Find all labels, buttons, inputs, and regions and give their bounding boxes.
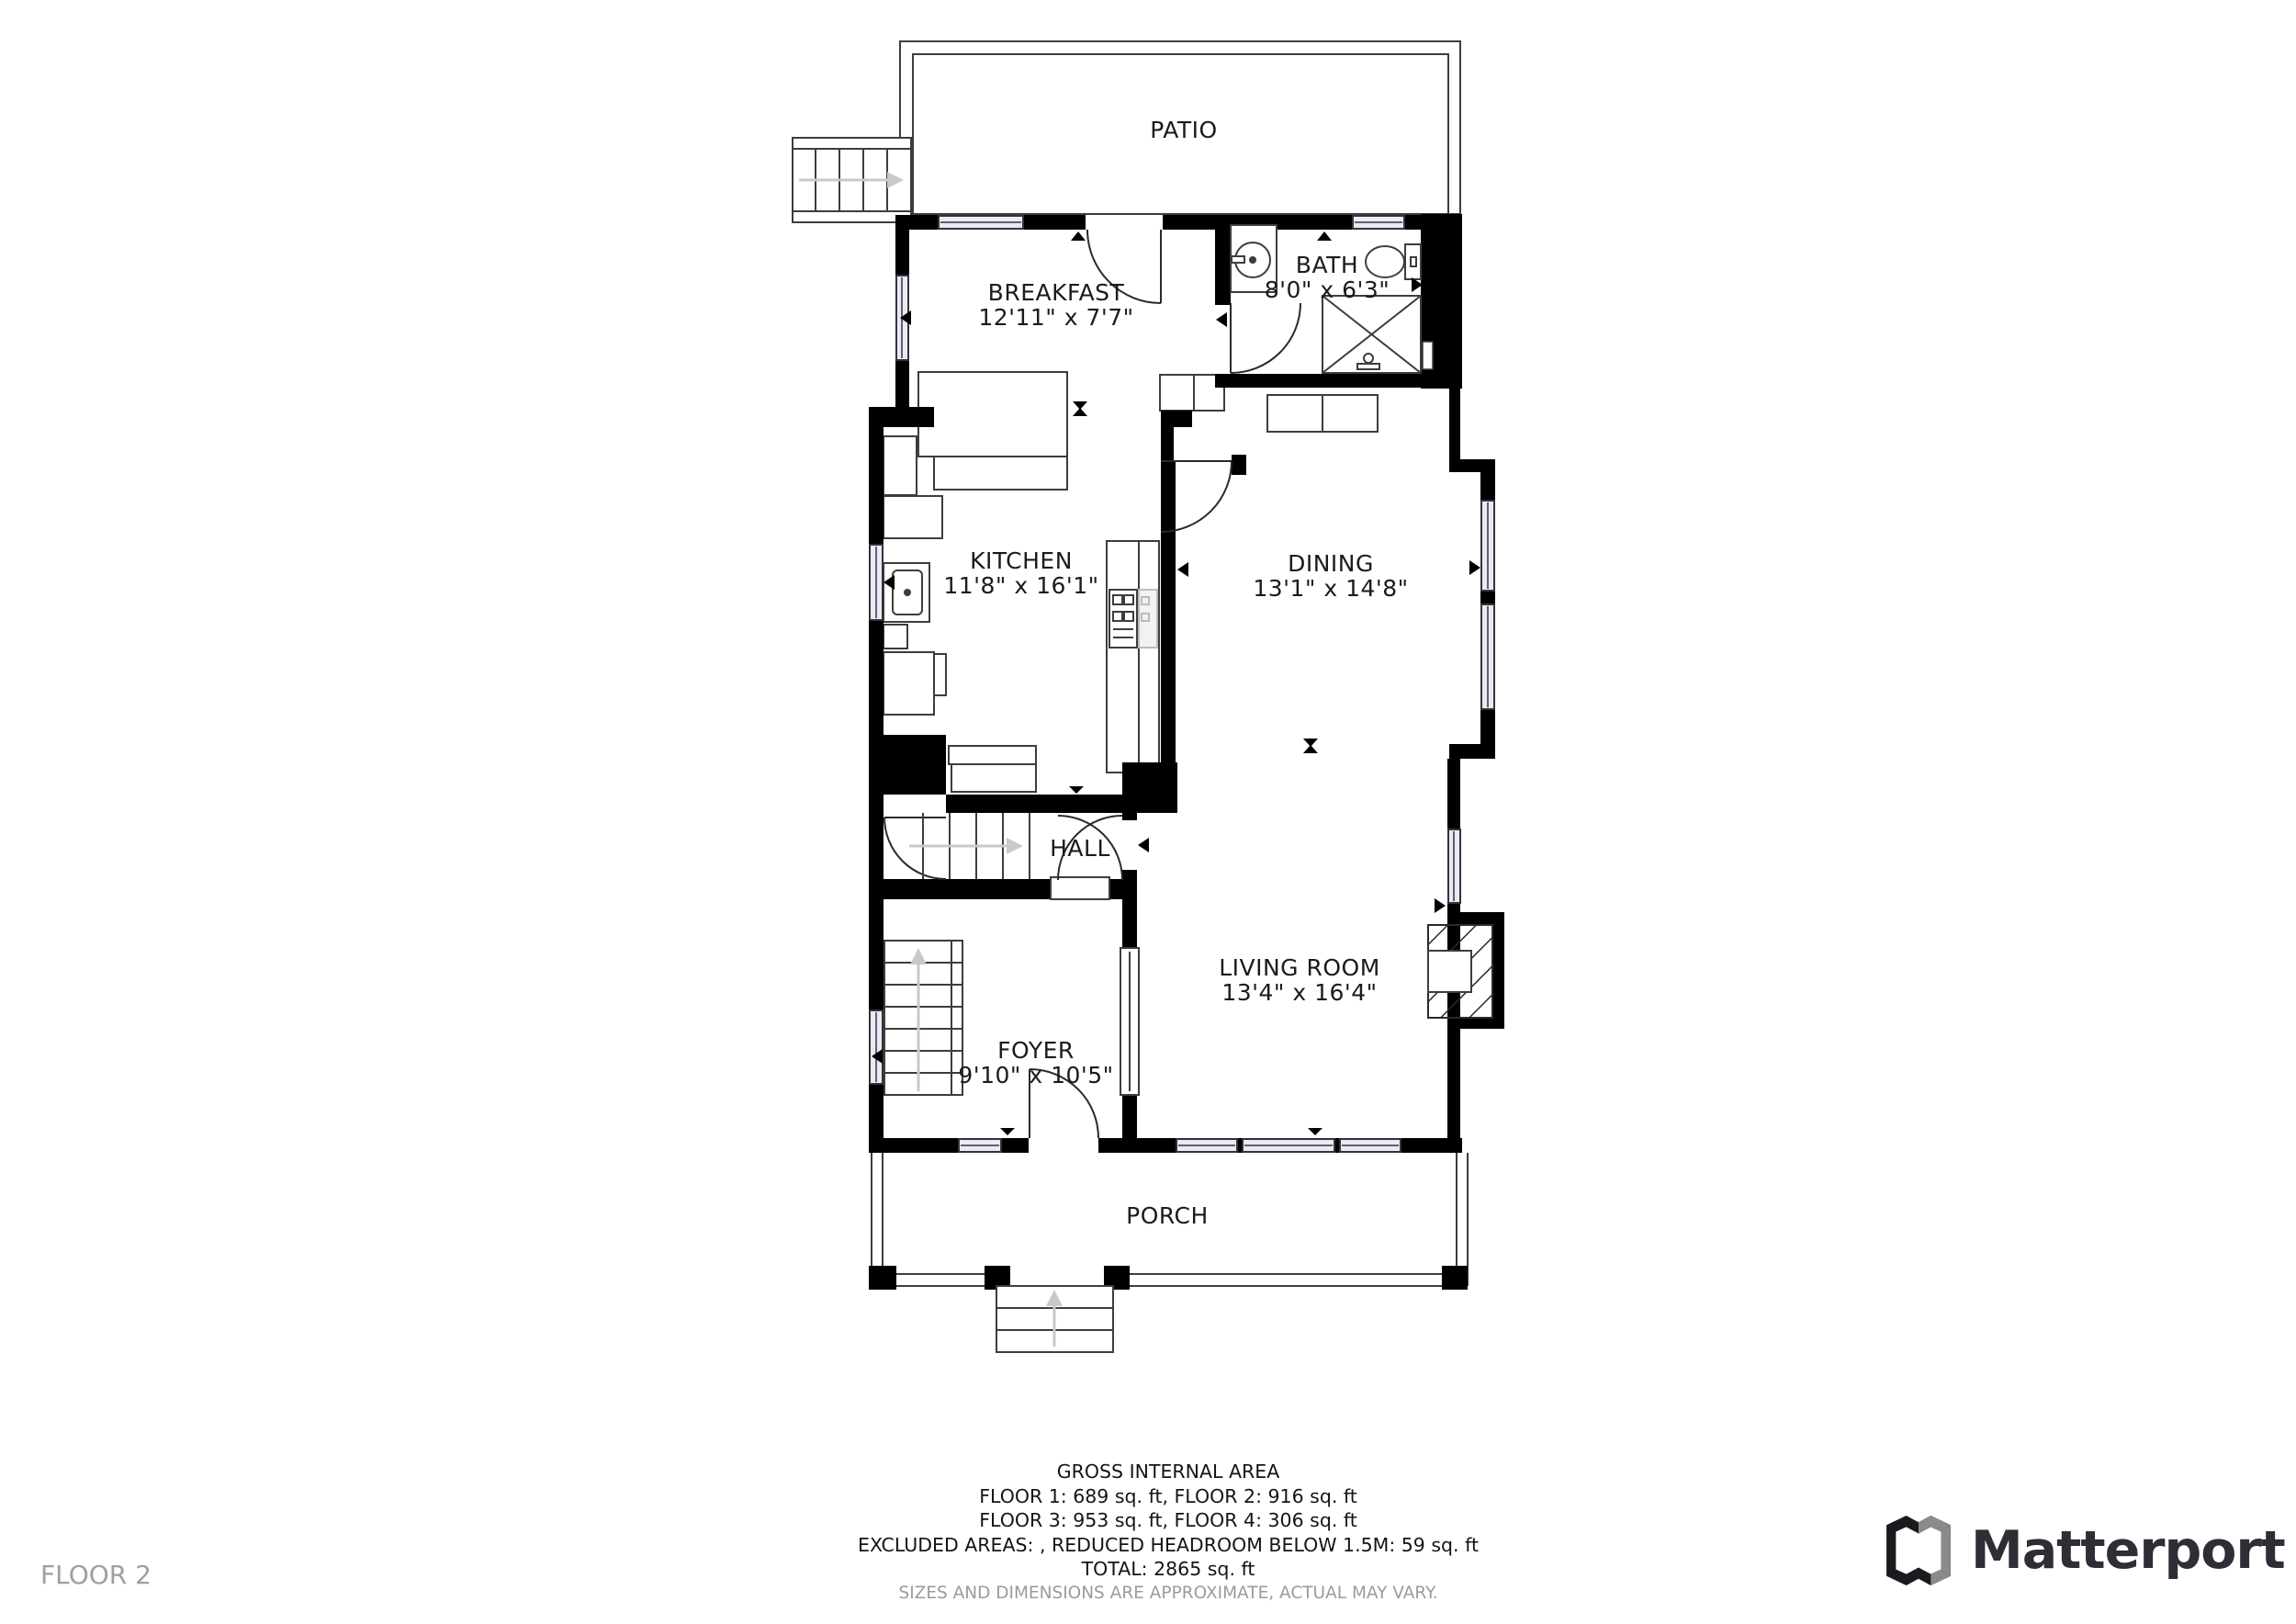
window-bath-top bbox=[1353, 216, 1404, 229]
window-foyer-front bbox=[959, 1139, 1001, 1152]
room-label-bath: BATH bbox=[1296, 252, 1358, 278]
room-label-breakfast: BREAKFAST bbox=[988, 279, 1125, 306]
window-kitchen-left bbox=[870, 545, 883, 620]
marker-right-icon bbox=[1469, 560, 1480, 575]
room-dims-breakfast: 12'11" x 7'7" bbox=[978, 304, 1133, 331]
room-dims-living-room: 13'4" x 16'4" bbox=[1221, 979, 1377, 1006]
marker-up-icon bbox=[1317, 231, 1332, 241]
stove bbox=[1109, 590, 1137, 648]
window-living-front-2 bbox=[1243, 1139, 1334, 1152]
porch bbox=[869, 1153, 1468, 1352]
window-dining-bay-upper bbox=[1481, 501, 1494, 591]
window-living-right bbox=[1448, 829, 1460, 903]
room-label-dining: DINING bbox=[1288, 550, 1374, 577]
foyer-stairs bbox=[884, 941, 962, 1095]
cased-opening bbox=[1120, 948, 1139, 1095]
room-label-foyer: FOYER bbox=[997, 1037, 1075, 1064]
door-bath bbox=[1231, 303, 1300, 373]
area-excluded: EXCLUDED AREAS: , REDUCED HEADROOM BELOW… bbox=[801, 1533, 1536, 1558]
window-living-front-1 bbox=[1176, 1139, 1237, 1152]
hall-threshold bbox=[1051, 877, 1109, 899]
room-dims-kitchen: 11'8" x 16'1" bbox=[943, 572, 1098, 599]
floor-plan-svg: PATIO BREAKFAST 12'11" x 7'7" BATH 8'0" … bbox=[0, 0, 2296, 1624]
marker-down-icon bbox=[1069, 786, 1084, 794]
floor-selector-label: FLOOR 2 bbox=[40, 1560, 152, 1590]
room-label-patio: PATIO bbox=[1150, 117, 1217, 143]
hall-stairs bbox=[909, 813, 1030, 879]
stove-ghost bbox=[1139, 590, 1157, 648]
shower bbox=[1322, 296, 1421, 373]
front-steps bbox=[996, 1286, 1113, 1352]
firebox bbox=[1428, 951, 1471, 992]
toilet-icon bbox=[1366, 246, 1404, 277]
window-dining-bay-lower bbox=[1481, 604, 1494, 709]
room-dims-foyer: 9'10" x 10'5" bbox=[958, 1062, 1113, 1088]
marker-left-icon bbox=[1216, 312, 1227, 327]
window-living-front-3 bbox=[1340, 1139, 1401, 1152]
room-labels: PATIO BREAKFAST 12'11" x 7'7" BATH 8'0" … bbox=[943, 117, 1408, 1229]
porch-column bbox=[869, 1266, 896, 1290]
room-label-hall: HALL bbox=[1050, 835, 1110, 862]
area-floors-1-2: FLOOR 1: 689 sq. ft, FLOOR 2: 916 sq. ft bbox=[801, 1484, 1536, 1509]
marker-left-icon bbox=[1177, 562, 1188, 577]
area-summary: GROSS INTERNAL AREA FLOOR 1: 689 sq. ft,… bbox=[801, 1460, 1536, 1607]
area-summary-title: GROSS INTERNAL AREA bbox=[801, 1460, 1536, 1484]
marker-up-icon bbox=[1071, 231, 1086, 241]
room-label-living-room: LIVING ROOM bbox=[1219, 954, 1380, 981]
stair-direction-arrow-icon bbox=[1007, 838, 1023, 854]
patio-stairs bbox=[793, 138, 911, 222]
marker-down-icon bbox=[1000, 1128, 1015, 1135]
marker-down-icon bbox=[1308, 1128, 1322, 1135]
marker-left-icon bbox=[1138, 838, 1149, 852]
room-label-porch: PORCH bbox=[1126, 1202, 1209, 1229]
disclaimer-text: SIZES AND DIMENSIONS ARE APPROXIMATE, AC… bbox=[801, 1582, 1536, 1607]
area-floors-3-4: FLOOR 3: 953 sq. ft, FLOOR 4: 306 sq. ft bbox=[801, 1508, 1536, 1533]
breakfast-counter bbox=[918, 372, 1067, 490]
room-dims-bath: 8'0" x 6'3" bbox=[1265, 276, 1390, 303]
window-foyer-left bbox=[870, 1010, 883, 1084]
fireplace bbox=[1428, 912, 1504, 1029]
room-label-kitchen: KITCHEN bbox=[970, 547, 1073, 574]
window-breakfast-top bbox=[939, 216, 1023, 229]
porch-column bbox=[1442, 1266, 1468, 1290]
floor-plan-page: PATIO BREAKFAST 12'11" x 7'7" BATH 8'0" … bbox=[0, 0, 2296, 1624]
opening-marker-icon bbox=[1073, 401, 1087, 416]
kitchen-island-counter bbox=[949, 746, 1036, 764]
opening-marker-icon bbox=[1303, 739, 1318, 753]
matterport-wordmark: Matterport bbox=[1971, 1520, 2285, 1581]
door-hall-left bbox=[884, 818, 946, 879]
room-dims-dining: 13'1" x 14'8" bbox=[1253, 575, 1408, 602]
matterport-logo: Matterport bbox=[1886, 1516, 2285, 1585]
marker-right-icon bbox=[1435, 898, 1446, 913]
matterport-mark-icon bbox=[1886, 1516, 1951, 1585]
area-total: TOTAL: 2865 sq. ft bbox=[801, 1557, 1536, 1582]
